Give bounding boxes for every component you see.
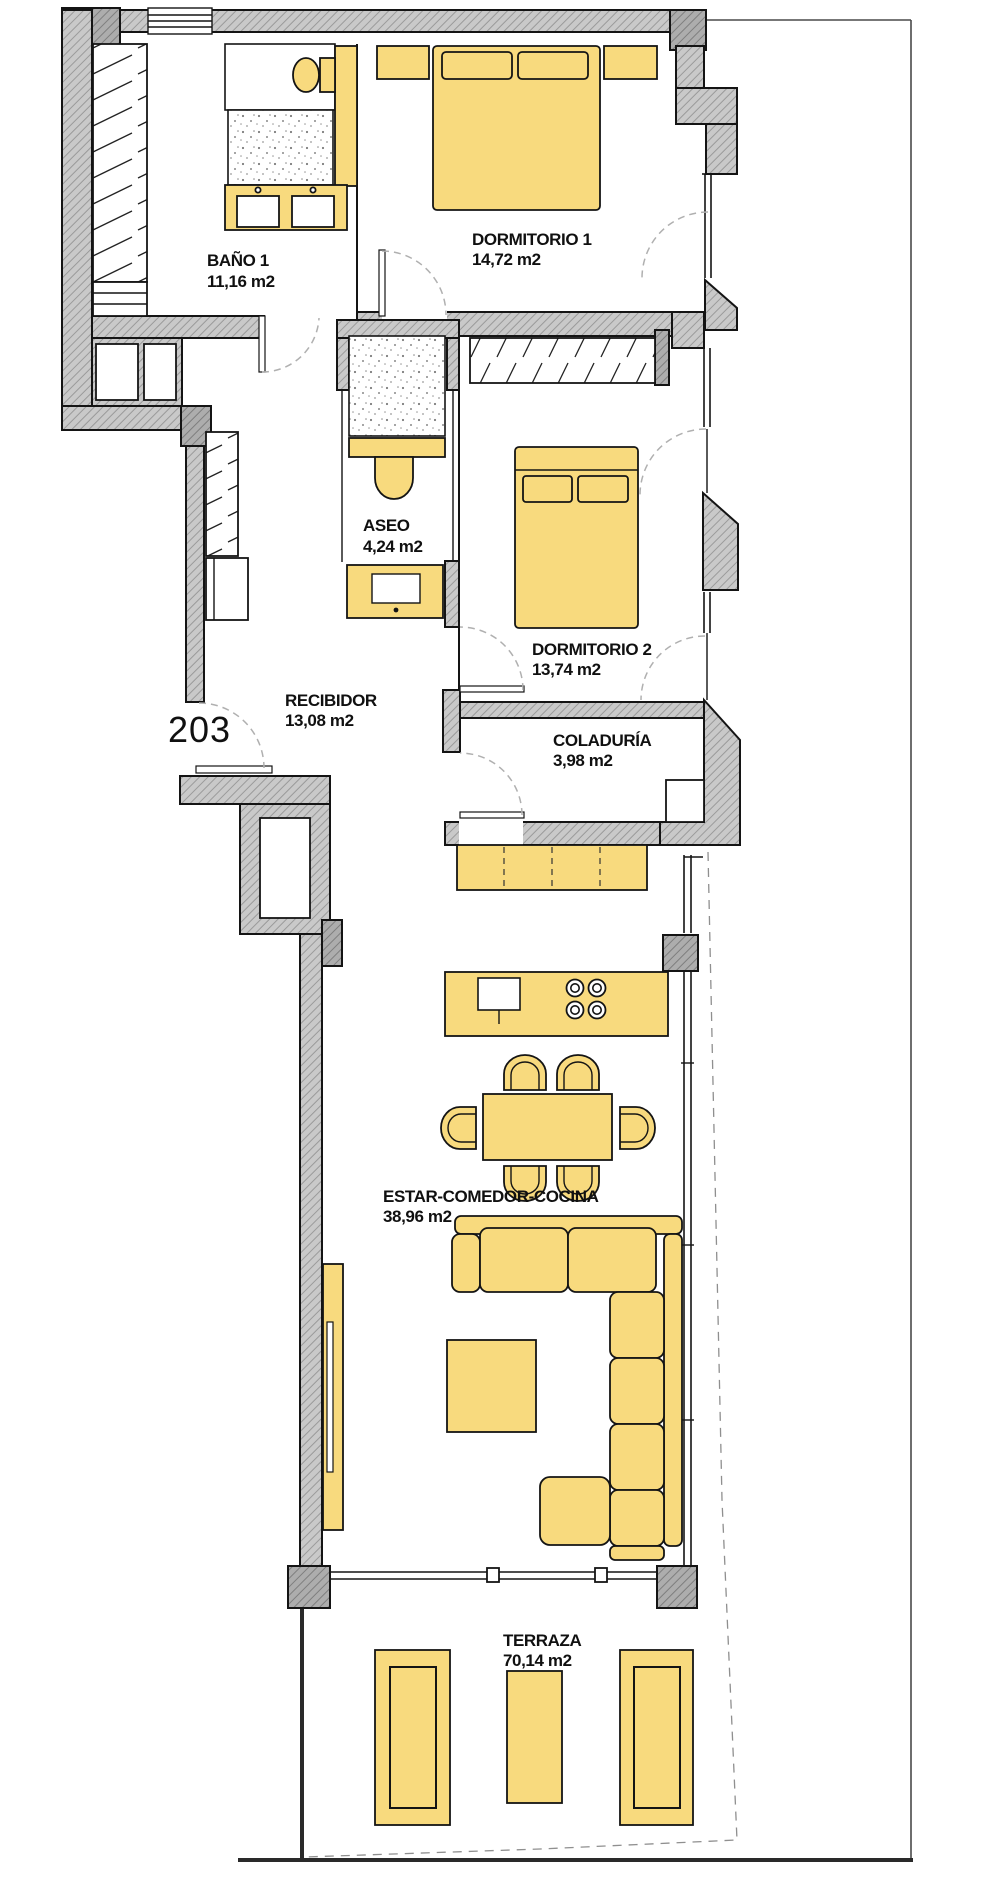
toilet-icon <box>293 58 319 92</box>
sun-lounger-icon <box>375 1650 450 1825</box>
basin <box>372 574 420 603</box>
faucet-right <box>310 187 315 192</box>
room-label-bano1: BAÑO 1 <box>207 250 269 270</box>
entry-bottom-wall <box>180 776 330 804</box>
kitchen <box>445 845 668 1036</box>
bano1-door <box>259 316 319 372</box>
nightstand-right <box>604 46 657 79</box>
aseo-left-wall <box>337 338 349 390</box>
pillow <box>442 52 512 79</box>
double-bed-icon <box>515 447 638 628</box>
entry-side-panel <box>206 558 248 620</box>
terrace-sliding-doors <box>330 1568 657 1582</box>
room-area-estar: 38,96 m2 <box>383 1207 452 1226</box>
living-window-long <box>681 972 694 1566</box>
room-label-aseo: ASEO <box>363 516 410 535</box>
pillar-terrace-left <box>288 1566 330 1608</box>
shower-step <box>349 438 445 457</box>
coffee-table-icon <box>447 1340 536 1432</box>
sink-basin-left <box>237 196 279 227</box>
nightstand-left <box>377 46 429 79</box>
bano1-bottom-wall <box>92 316 264 338</box>
room-label-dorm2: DORMITORIO 2 <box>532 640 652 659</box>
room-label-recibidor: RECIBIDOR <box>285 691 377 710</box>
pillow <box>523 476 572 502</box>
living-left-wall <box>300 934 322 1568</box>
bathroom-partition <box>335 46 357 186</box>
coladuria-right-wall <box>660 700 740 845</box>
left-outer-wall <box>62 10 92 430</box>
shower-icon <box>349 336 445 436</box>
room-area-terraza: 70,14 m2 <box>503 1651 572 1670</box>
chair-icon <box>504 1055 546 1090</box>
floor-plan-page: BAÑO 1 11,16 m2 DORMITORIO 1 14,72 m2 AS… <box>0 0 1000 1894</box>
pillar-corridor <box>322 920 342 966</box>
left-stub-wall <box>62 406 182 430</box>
room-label-dorm1: DORMITORIO 1 <box>472 230 592 249</box>
dorm1-right-wall-c <box>706 124 737 174</box>
toilet-icon <box>375 457 413 499</box>
bano1-window <box>148 8 212 34</box>
tv-screen <box>327 1322 333 1472</box>
room-label-coladuria: COLADURÍA <box>553 731 652 750</box>
sun-lounger-icon <box>620 1650 693 1825</box>
terrace-furniture <box>375 1650 693 1825</box>
room-area-dorm1: 14,72 m2 <box>472 250 541 269</box>
chair-icon <box>441 1107 476 1149</box>
sink-icon <box>478 978 520 1010</box>
unit-number-label: 203 <box>168 709 231 750</box>
aseo-right-wall <box>447 338 459 390</box>
chair-icon <box>620 1107 655 1149</box>
pillow <box>518 52 588 79</box>
dorm2-door-stub <box>443 690 460 752</box>
coladuria-niche <box>666 780 704 822</box>
shaft-box-1 <box>96 344 138 400</box>
wardrobe-icon <box>206 432 238 556</box>
aseo-vanity-stub <box>445 561 459 627</box>
coladuria-door-opening <box>459 820 523 847</box>
drain-dot <box>394 608 399 613</box>
entry-shaft-inner <box>260 818 310 918</box>
dining-set <box>441 1055 655 1201</box>
room-label-estar: ESTAR-COMEDOR-COCINA <box>383 1187 599 1206</box>
shaft-box-2 <box>144 344 176 400</box>
wardrobe-icon <box>470 338 655 383</box>
pillar-terrace-right <box>657 1566 697 1608</box>
living-room-furniture <box>323 1216 682 1560</box>
dorm2-window-lower <box>704 592 710 700</box>
room-area-bano1: 11,16 m2 <box>207 272 275 291</box>
toilet-tank <box>320 58 335 92</box>
pillar-top-right <box>670 10 706 50</box>
sink-basin-right <box>292 196 334 227</box>
dorm1-right-wall-b <box>676 88 737 124</box>
dorm1-balcony-window <box>702 174 714 278</box>
room-area-dorm2: 13,74 m2 <box>532 660 601 679</box>
dorm1-balcony-door-swing <box>642 212 708 278</box>
room-label-terraza: TERRAZA <box>503 1631 582 1650</box>
faucet-left <box>255 187 260 192</box>
floor-plan-drawing: BAÑO 1 11,16 m2 DORMITORIO 1 14,72 m2 AS… <box>0 0 1000 1894</box>
dorm2-top-right-corner <box>672 312 704 348</box>
closet-end-block <box>655 330 669 385</box>
dining-table-icon <box>483 1094 612 1160</box>
dorm2-bottom-wall <box>460 702 704 718</box>
dorm1-door <box>379 250 446 316</box>
dorm1-right-wall-a <box>676 46 704 90</box>
room-area-coladuria: 3,98 m2 <box>553 751 613 770</box>
living-window-upper <box>684 855 703 933</box>
dorm2-bay-wall <box>703 493 738 590</box>
shower-icon <box>228 110 333 185</box>
dorm2-window-upper <box>704 348 710 493</box>
chair-icon <box>557 1055 599 1090</box>
dorm2-balcony-door-swing-upper <box>640 429 706 495</box>
room-area-aseo: 4,24 m2 <box>363 537 423 556</box>
room-area-recibidor: 13,08 m2 <box>285 711 354 730</box>
corridor-left-wall <box>186 446 204 702</box>
dorm2-furniture <box>515 447 638 628</box>
wardrobe-icon <box>93 44 147 282</box>
aseo-fixtures <box>347 336 445 618</box>
dorm1-furniture <box>377 46 657 210</box>
pillar-kitchen <box>663 935 698 971</box>
coladuria-door <box>460 753 524 818</box>
dorm1-right-wall-d <box>705 280 737 330</box>
pillow <box>578 476 628 502</box>
dorm2-door <box>460 627 524 692</box>
sun-lounger-icon <box>507 1671 562 1803</box>
shelf-unit <box>93 282 147 316</box>
